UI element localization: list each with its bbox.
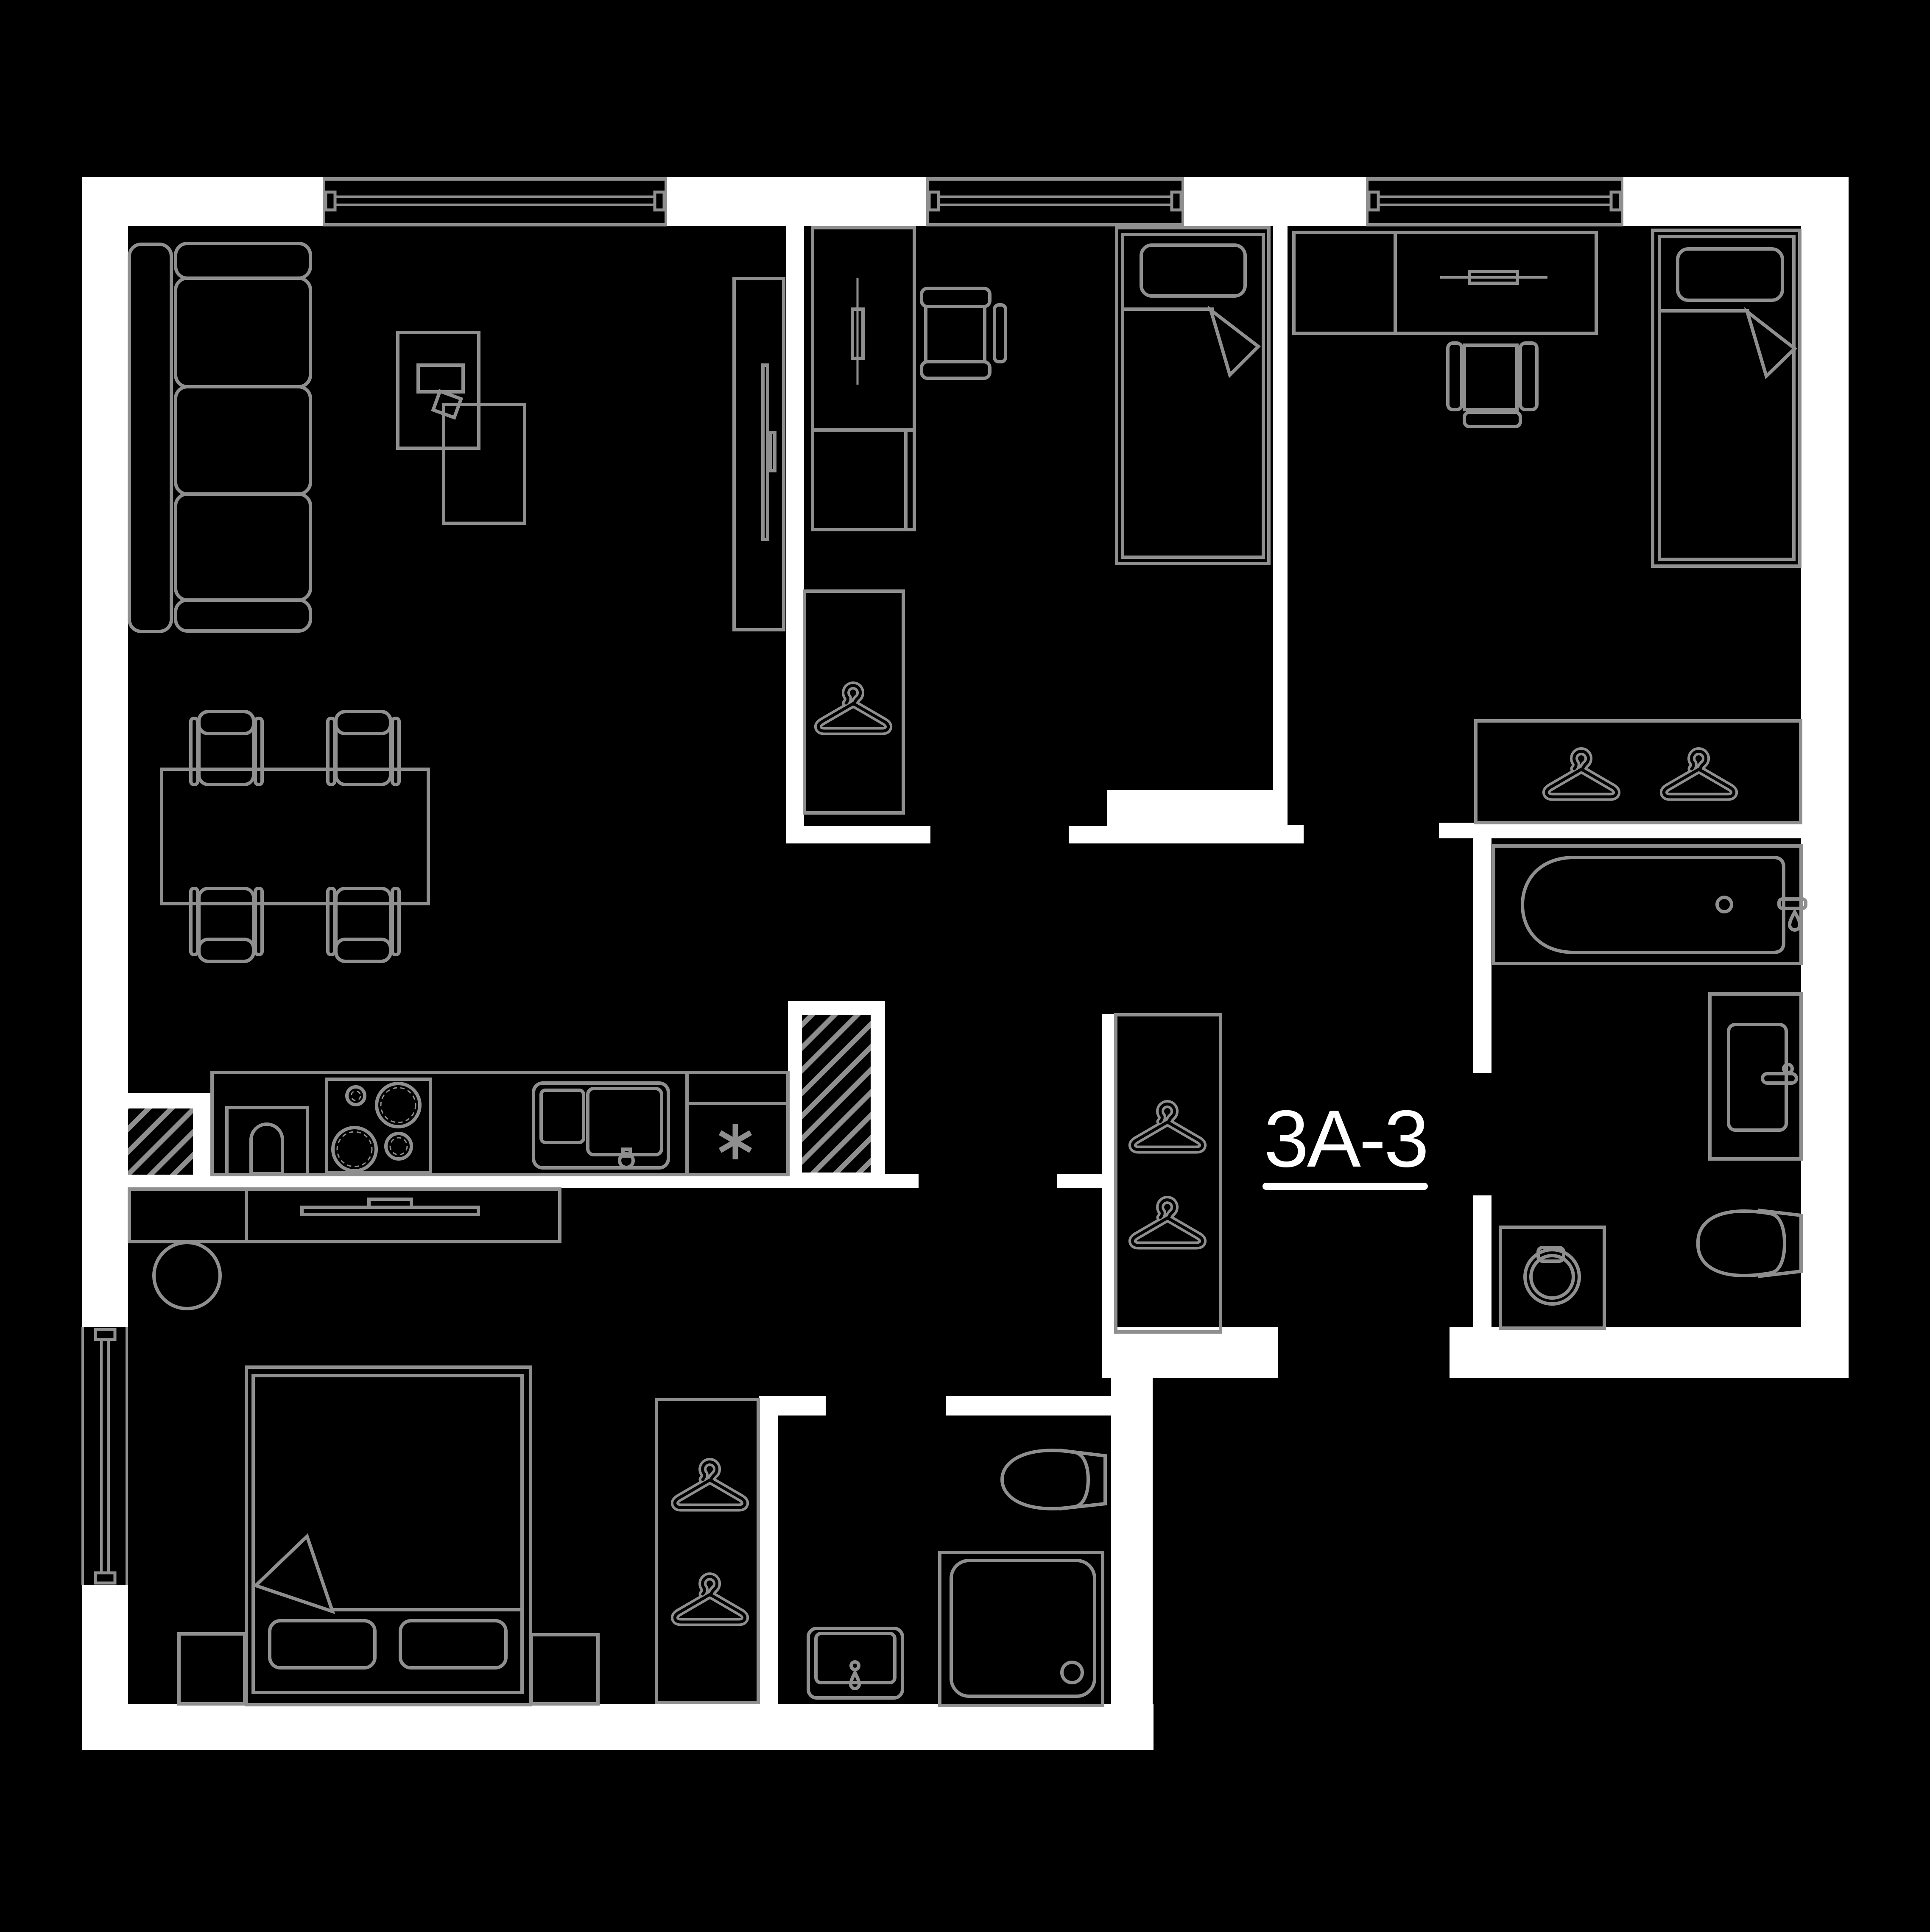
svg-text:3A-3: 3A-3 xyxy=(1264,1094,1427,1184)
